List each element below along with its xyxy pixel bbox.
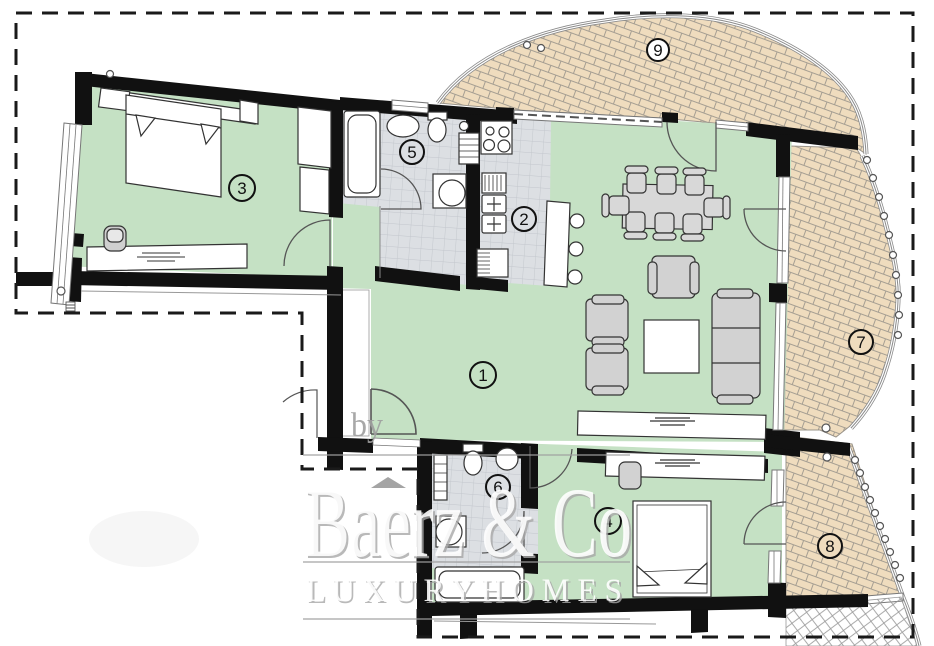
svg-text:5: 5 <box>407 143 416 162</box>
svg-text:L U X U R Y H O M E S: L U X U R Y H O M E S <box>306 573 622 609</box>
svg-text:8: 8 <box>825 537 834 556</box>
svg-text:by: by <box>351 407 383 444</box>
svg-text:3: 3 <box>237 179 246 198</box>
svg-text:2: 2 <box>519 210 528 229</box>
svg-text:9: 9 <box>653 41 662 60</box>
svg-text:1: 1 <box>478 366 487 385</box>
svg-text:7: 7 <box>856 333 865 352</box>
